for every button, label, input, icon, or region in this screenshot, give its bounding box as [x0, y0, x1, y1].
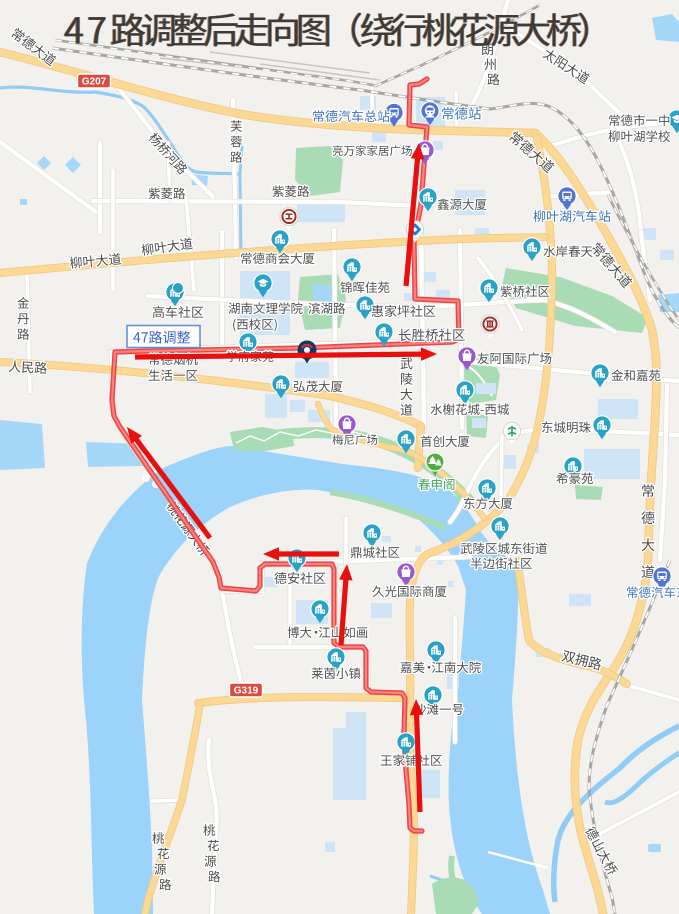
svg-text:G319: G319 [234, 686, 259, 697]
svg-text:G207: G207 [82, 77, 107, 88]
